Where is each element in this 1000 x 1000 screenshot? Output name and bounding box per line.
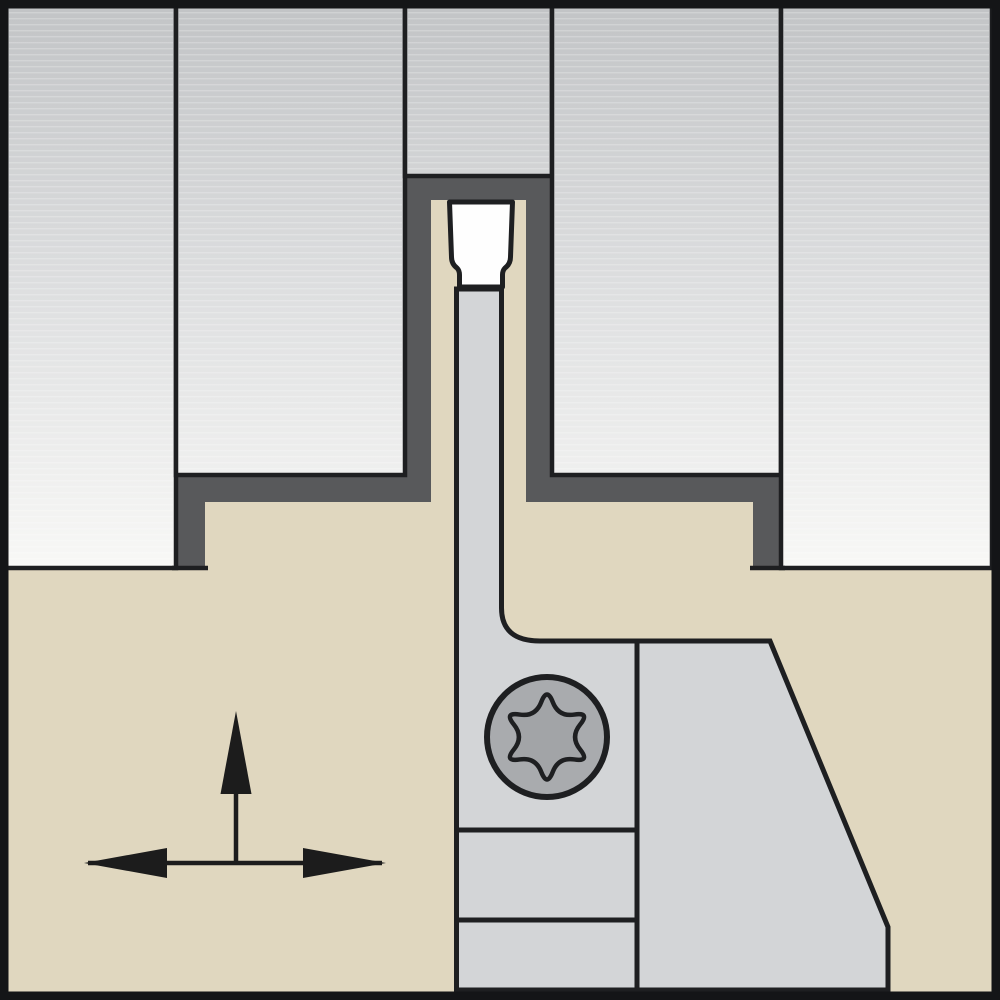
groove-wall-left: [176, 475, 205, 570]
tool-diagram: [0, 0, 1000, 1000]
slab-texture: [555, 9, 778, 472]
slab-texture: [179, 9, 402, 472]
arrow-up-stem: [234, 791, 239, 864]
groove-floor-right: [552, 475, 781, 502]
diagram-canvas: [0, 0, 1000, 1000]
slab-texture: [9, 9, 173, 565]
slab-texture: [784, 9, 989, 565]
groove-wall-right: [753, 475, 781, 570]
slab-texture: [408, 9, 549, 173]
groove-floor-left: [176, 475, 405, 502]
torx-screw-icon: [487, 677, 607, 797]
cutting-insert: [450, 202, 513, 287]
